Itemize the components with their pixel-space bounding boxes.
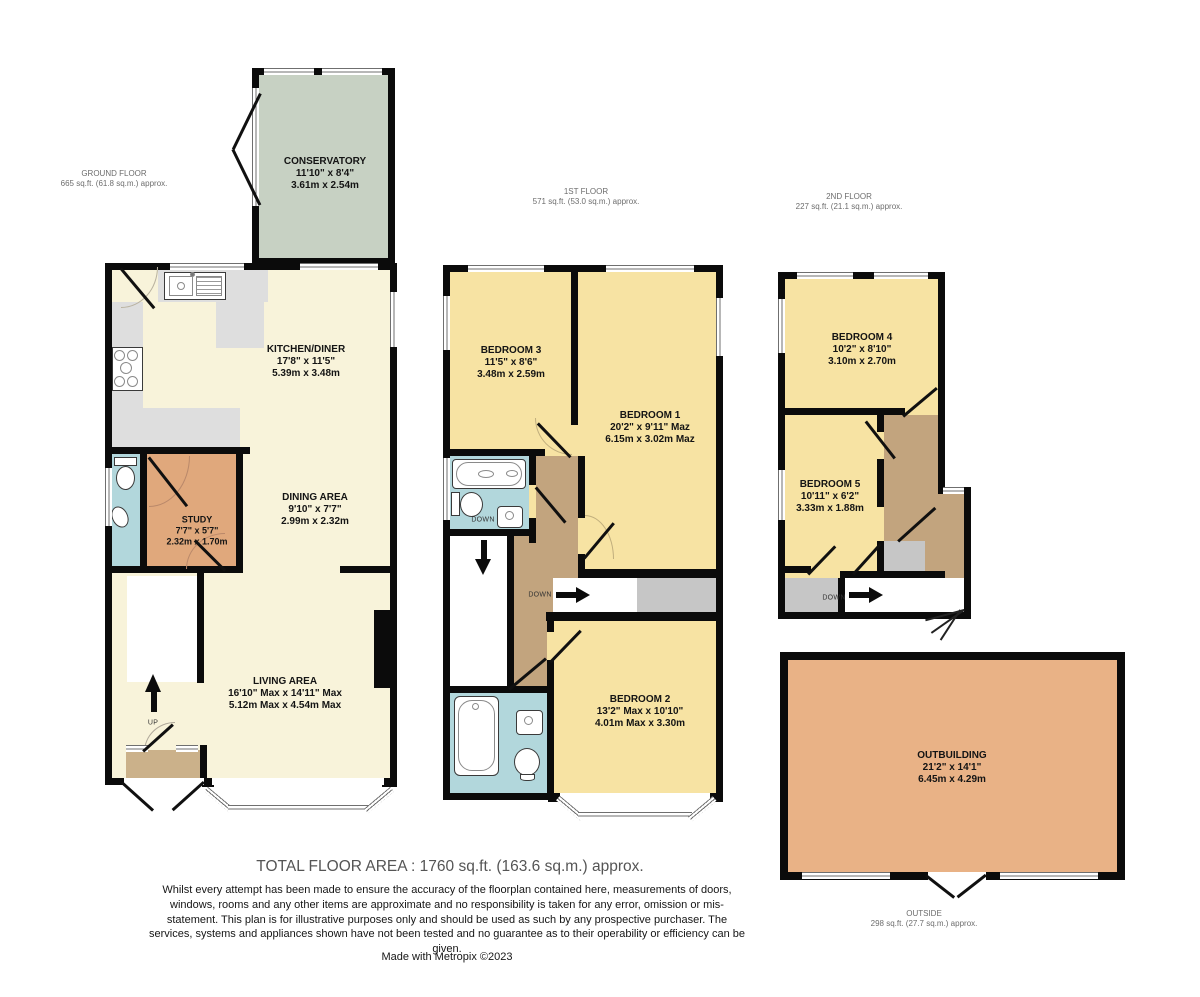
- outside-header: OUTSIDE 298 sq.ft. (27.7 sq.m.) approx.: [871, 909, 978, 929]
- window: [264, 68, 314, 75]
- window: [943, 487, 964, 494]
- window: [176, 745, 198, 752]
- window: [443, 296, 450, 350]
- window: [802, 872, 890, 879]
- room-size-imperial: 10'11" x 6'2": [796, 491, 864, 503]
- staircase-ground: [127, 576, 197, 682]
- room-size-metric: 4.01m Max x 3.30m: [595, 718, 685, 730]
- room-name: LIVING AREA: [228, 676, 342, 688]
- fixture-detail: [190, 272, 195, 277]
- room-size-metric: 5.12m Max x 4.54m Max: [228, 700, 342, 712]
- floor-area: 298 sq.ft. (27.7 sq.m.) approx.: [871, 919, 978, 929]
- room-label-kitchen-diner: KITCHEN/DINER 17'8" x 11'5" 5.39m x 3.48…: [267, 344, 345, 380]
- room-name: CONSERVATORY: [284, 156, 366, 168]
- floor-title: GROUND FLOOR: [61, 169, 168, 179]
- wall: [571, 265, 578, 425]
- room-size-metric: 6.15m x 3.02m Maz: [605, 434, 695, 446]
- room-name: BEDROOM 1: [605, 410, 695, 422]
- room-size-metric: 5.39m x 3.48m: [267, 368, 345, 380]
- fixture-detail: [458, 700, 495, 771]
- up-arrow: [151, 690, 157, 712]
- toilet: [114, 457, 137, 466]
- toilet: [514, 748, 540, 776]
- down-arrow: [475, 559, 491, 575]
- window: [468, 265, 544, 272]
- right-arrow: [869, 587, 883, 603]
- stairs-down-label: DOWN: [471, 517, 494, 524]
- fixture-detail: [114, 350, 125, 361]
- room-label-outbuilding: OUTBUILDING 21'2" x 14'1" 6.45m x 4.29m: [917, 750, 986, 786]
- first-floor-header: 1ST FLOOR 571 sq.ft. (53.0 sq.m.) approx…: [533, 187, 640, 207]
- room-label-living-area: LIVING AREA 16'10" Max x 14'11" Max 5.12…: [228, 676, 342, 712]
- room-size-imperial: 10'2" x 8'10": [828, 344, 896, 356]
- room-label-bedroom4: BEDROOM 4 10'2" x 8'10" 3.10m x 2.70m: [828, 332, 896, 368]
- room-name: OUTBUILDING: [917, 750, 986, 762]
- landing-gray-area: [880, 541, 925, 571]
- floor-title: 2ND FLOOR: [796, 192, 903, 202]
- metropix-credit: Made with Metropix ©2023: [147, 951, 747, 963]
- up-arrow: [145, 674, 161, 692]
- fixture-detail: [196, 276, 222, 296]
- wall: [877, 459, 884, 507]
- fixture-detail: [505, 511, 514, 520]
- disclaimer-text: Whilst every attempt has been made to en…: [147, 883, 747, 957]
- second-floor-header: 2ND FLOOR 227 sq.ft. (21.1 sq.m.) approx…: [796, 192, 903, 212]
- window: [322, 68, 382, 75]
- window: [228, 805, 370, 812]
- wall: [197, 573, 204, 683]
- down-arrow: [481, 540, 487, 560]
- door-leaf: [121, 781, 154, 811]
- right-arrow: [849, 592, 869, 598]
- landing-gray-area: [637, 578, 716, 612]
- wall: [105, 447, 250, 454]
- window: [606, 265, 694, 272]
- floor-title: 1ST FLOOR: [533, 187, 640, 197]
- wall: [450, 686, 548, 693]
- room-name: BEDROOM 4: [828, 332, 896, 344]
- room-size-imperial: 11'10" x 8'4": [284, 168, 366, 180]
- room-size-metric: 3.10m x 2.70m: [828, 356, 896, 368]
- fixture-detail: [478, 470, 494, 478]
- wall: [578, 569, 723, 578]
- total-floor-area: TOTAL FLOOR AREA : 1760 sq.ft. (163.6 sq…: [130, 858, 770, 876]
- room-size-imperial: 7'7" x 5'7": [166, 526, 227, 537]
- window: [874, 272, 928, 279]
- window: [443, 458, 450, 520]
- room-size-metric: 3.61m x 2.54m: [284, 180, 366, 192]
- fixture-detail: [127, 350, 138, 361]
- room-name: BEDROOM 2: [595, 694, 685, 706]
- staircase-first: [450, 574, 507, 690]
- wall: [529, 449, 536, 485]
- room-name: BEDROOM 5: [796, 479, 864, 491]
- fixture-detail: [177, 282, 185, 290]
- fixture-detail: [472, 703, 479, 710]
- room-size-imperial: 9'10" x 7'7": [281, 504, 349, 516]
- wall: [547, 612, 554, 632]
- floor-area: 571 sq.ft. (53.0 sq.m.) approx.: [533, 197, 640, 207]
- fixture-detail: [120, 362, 132, 374]
- room-size-imperial: 21'2" x 14'1": [917, 762, 986, 774]
- window: [364, 787, 394, 813]
- floorplan-canvas: GROUND FLOOR 665 sq.ft. (61.8 sq.m.) app…: [0, 0, 1200, 997]
- right-arrow: [576, 587, 590, 603]
- stairs-up-label: UP: [148, 720, 158, 727]
- toilet: [451, 492, 460, 516]
- window: [390, 292, 397, 347]
- wall: [507, 536, 514, 693]
- room-size-imperial: 11'5" x 8'6": [477, 357, 545, 369]
- window: [170, 263, 244, 270]
- window: [578, 812, 692, 819]
- room-name: STUDY: [166, 515, 227, 526]
- floor-title: OUTSIDE: [871, 909, 978, 919]
- room-name: BEDROOM 3: [477, 345, 545, 357]
- wall: [140, 454, 147, 566]
- window: [778, 470, 785, 520]
- wall: [778, 408, 905, 415]
- wall-opening: [124, 778, 204, 785]
- ground-floor-header: GROUND FLOOR 665 sq.ft. (61.8 sq.m.) app…: [61, 169, 168, 189]
- fixture-detail: [114, 376, 125, 387]
- kitchen-counter: [112, 408, 240, 447]
- wall: [877, 415, 884, 432]
- room-label-conservatory: CONSERVATORY 11'10" x 8'4" 3.61m x 2.54m: [284, 156, 366, 192]
- wall-opening: [212, 778, 384, 785]
- window: [778, 299, 785, 353]
- wall: [778, 566, 811, 573]
- stairs-down-label: DOWN: [528, 592, 551, 599]
- room-label-bedroom3: BEDROOM 3 11'5" x 8'6" 3.48m x 2.59m: [477, 345, 545, 381]
- room-label-study: STUDY 7'7" x 5'7" 2.32m x 1.70m: [166, 515, 227, 548]
- room-label-bedroom5: BEDROOM 5 10'11" x 6'2" 3.33m x 1.88m: [796, 479, 864, 515]
- floor-area: 665 sq.ft. (61.8 sq.m.) approx.: [61, 179, 168, 189]
- room-size-metric: 3.33m x 1.88m: [796, 503, 864, 515]
- wall: [236, 447, 243, 566]
- fixture-detail: [524, 716, 533, 725]
- room-size-imperial: 16'10" Max x 14'11" Max: [228, 688, 342, 700]
- wall: [578, 456, 585, 518]
- room-name: KITCHEN/DINER: [267, 344, 345, 356]
- fixture-detail: [506, 470, 518, 477]
- door-leaf: [172, 781, 205, 811]
- room-size-imperial: 13'2" Max x 10'10": [595, 706, 685, 718]
- kitchen-counter: [216, 302, 264, 348]
- toilet: [460, 492, 483, 517]
- chimney-breast: [374, 610, 397, 688]
- wall: [443, 529, 536, 536]
- room-size-metric: 2.99m x 2.32m: [281, 516, 349, 528]
- wall: [547, 660, 554, 793]
- room-name: DINING AREA: [281, 492, 349, 504]
- wall-opening: [560, 793, 710, 800]
- floor-area: 227 sq.ft. (21.1 sq.m.) approx.: [796, 202, 903, 212]
- window: [300, 263, 378, 270]
- window: [797, 272, 853, 279]
- landing: [514, 612, 547, 688]
- room-size-imperial: 17'8" x 11'5": [267, 356, 345, 368]
- window: [716, 298, 723, 356]
- room-size-metric: 3.48m x 2.59m: [477, 369, 545, 381]
- room-size-imperial: 20'2" x 9'11" Maz: [605, 422, 695, 434]
- wall: [340, 566, 397, 573]
- stairs-down-label: DOWN: [822, 595, 845, 602]
- room-size-metric: 2.32m x 1.70m: [166, 537, 227, 548]
- window: [1000, 872, 1098, 879]
- window: [105, 468, 112, 526]
- room-size-metric: 6.45m x 4.29m: [917, 774, 986, 786]
- wall: [546, 612, 723, 621]
- fixture-detail: [127, 376, 138, 387]
- porch: [126, 750, 200, 778]
- room-label-bedroom1: BEDROOM 1 20'2" x 9'11" Maz 6.15m x 3.02…: [605, 410, 695, 446]
- toilet: [116, 466, 135, 490]
- staircase-winder: [933, 578, 964, 612]
- room-label-bedroom2: BEDROOM 2 13'2" Max x 10'10" 4.01m Max x…: [595, 694, 685, 730]
- room-label-dining-area: DINING AREA 9'10" x 7'7" 2.99m x 2.32m: [281, 492, 349, 528]
- toilet: [520, 774, 535, 781]
- right-arrow: [556, 592, 576, 598]
